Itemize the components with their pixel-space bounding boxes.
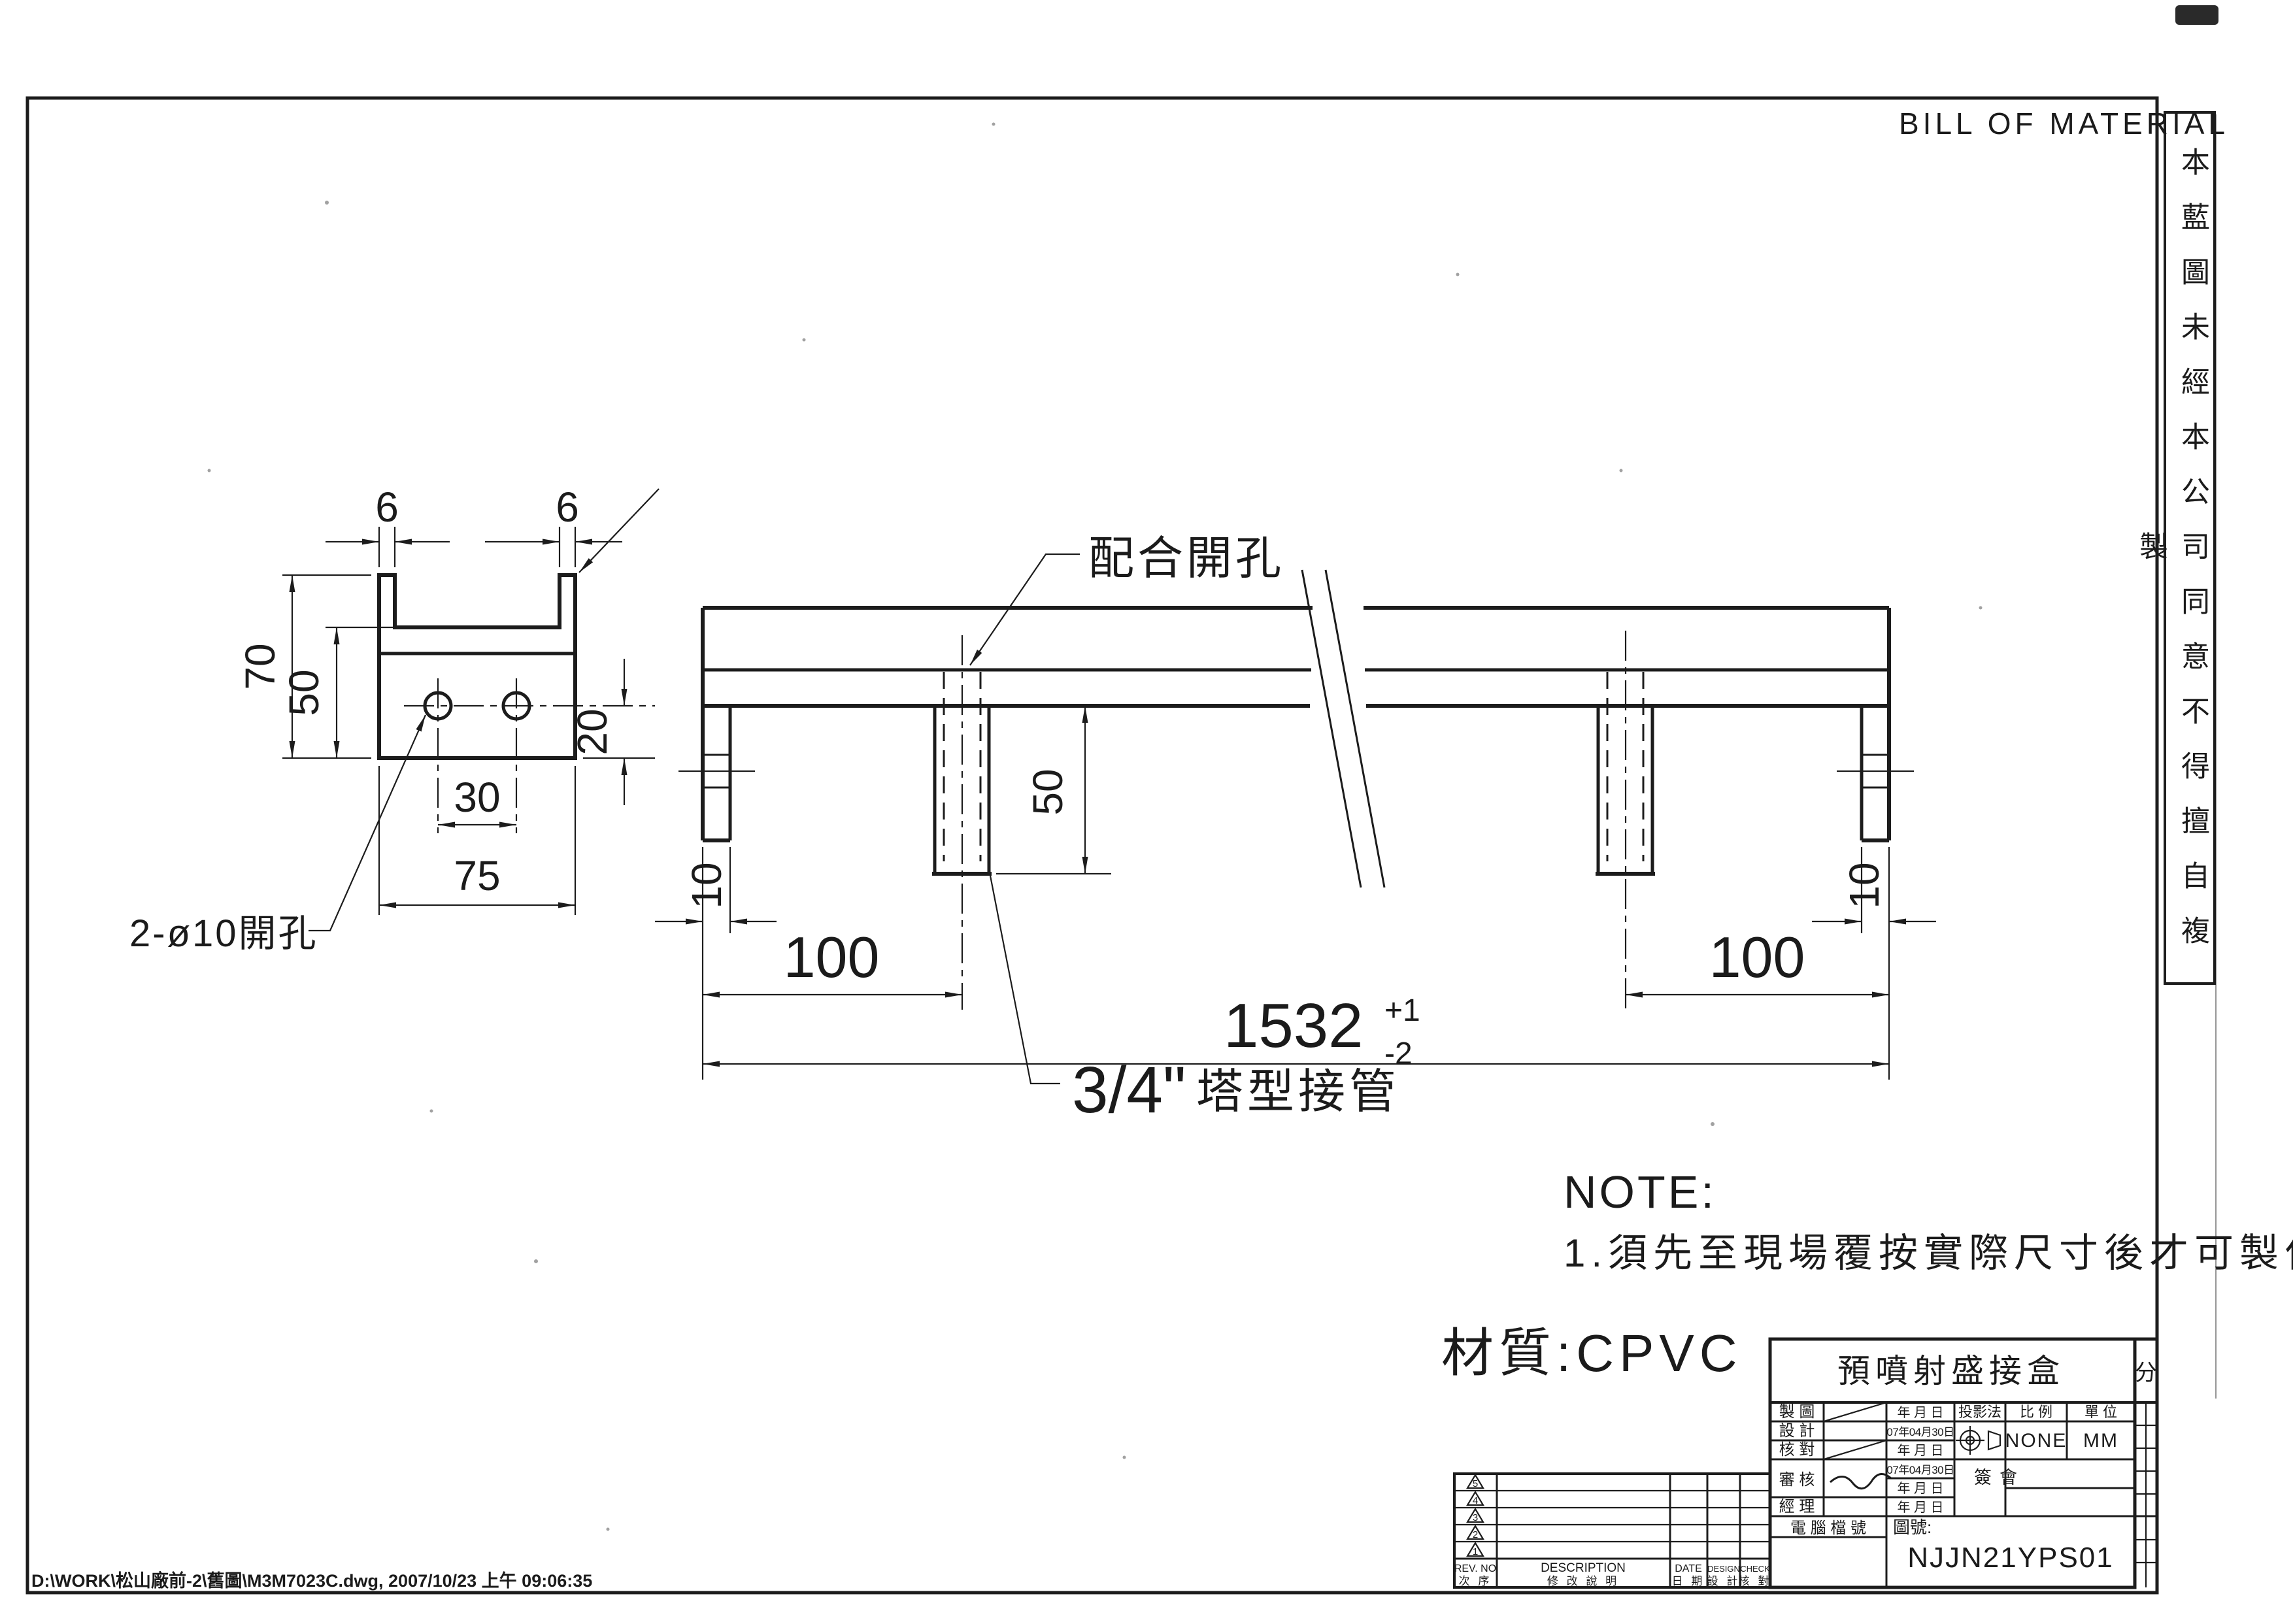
rev-mark-4: 4 [1467, 1492, 1483, 1506]
label-drawing-no: 圖號: [1893, 1517, 1932, 1537]
date-check: 年 月 日 [1897, 1443, 1943, 1458]
scale-value: NONE [2005, 1430, 2067, 1451]
rev-header-desc-en: DESCRIPTION [1541, 1561, 1626, 1575]
label-design: 設 計 [1779, 1422, 1815, 1440]
dim-tab-left: 10 [683, 862, 730, 908]
title-block-title: 預噴射盛接盒 [1837, 1353, 2065, 1389]
dim-right-span: 100 [1709, 925, 1805, 989]
pipe-name-callout: 塔型接管 [1196, 1066, 1400, 1118]
drawing-number: NJJN21YPS01 [1907, 1542, 2113, 1574]
file-path: D:\WORK\松山廠前-2\舊圖\M3M7023C.dwg, 2007/10/… [31, 1570, 592, 1591]
label-file-no: 電 腦 檔 號 [1790, 1519, 1866, 1537]
date-review-2: 年 月 日 [1897, 1481, 1943, 1496]
svg-text:5: 5 [1473, 1478, 1478, 1489]
break-mark [1326, 570, 1384, 887]
note-heading: NOTE: [1564, 1167, 1716, 1218]
rev-mark-2: 2 [1467, 1526, 1483, 1540]
rev-header-no-en: REV. NO [1454, 1563, 1496, 1574]
date-manager: 年 月 日 [1897, 1500, 1943, 1515]
rev-mark-1: 1 [1467, 1543, 1483, 1557]
rev-header-date-zh: 日 期 [1672, 1575, 1705, 1587]
label-review: 審 核 [1779, 1471, 1815, 1489]
dim-hole-spacing: 30 [454, 774, 500, 821]
dim-total-tol-lower: -2 [1384, 1036, 1413, 1071]
note-line-1: 1.須先至現場覆按實際尺寸後才可製作. [1564, 1231, 2293, 1275]
dist-label: 分 [2135, 1361, 2157, 1385]
rev-header-desc-zh: 修 改 說 明 [1547, 1575, 1619, 1587]
drawing-sheet: BILL OF MATERIAL 6 6 70 50 [0, 0, 2293, 1624]
svg-text:2: 2 [1473, 1529, 1478, 1540]
section-view [379, 575, 655, 833]
dim-tube-length: 50 [1024, 769, 1071, 815]
svg-text:1: 1 [1473, 1546, 1478, 1557]
rev-header-check-zh: 核 對 [1739, 1575, 1772, 1587]
rev-header-design-zh: 設 計 [1707, 1575, 1741, 1587]
rev-header-design-en: DESIGN [1707, 1564, 1740, 1574]
signature-squiggle [1830, 1474, 1891, 1488]
dim-tab-right: 10 [1841, 862, 1888, 908]
dim-total: 1532 [1224, 991, 1364, 1061]
dim-inner: 50 [280, 669, 327, 716]
material-label: 材質:CPVC [1441, 1324, 1743, 1382]
unit-value: MM [2083, 1430, 2118, 1451]
header-unit: 單 位 [2084, 1404, 2117, 1420]
rev-header-no-zh: 次 序 [1459, 1575, 1492, 1587]
label-manager: 經 理 [1779, 1498, 1815, 1516]
break-mark [1302, 570, 1361, 887]
fit-hole-callout: 配合開孔 [1088, 533, 1284, 584]
rev-header-check-en: CHECK [1740, 1564, 1770, 1574]
scan-noise [208, 123, 1983, 1531]
section-dimensions: 6 6 70 50 20 30 75 2-ø10開孔 [129, 484, 659, 955]
title-block: 預噴射盛接盒 製 圖 設 計 核 對 審 核 經 理 年 月 日 07年04月3… [1770, 1339, 2157, 1587]
dim-flange-left: 6 [375, 484, 399, 531]
label-draw: 製 圖 [1779, 1403, 1815, 1421]
dim-flange-right: 6 [556, 484, 579, 531]
rev-mark-3: 3 [1467, 1509, 1483, 1523]
dim-total-tol-upper: +1 [1384, 993, 1420, 1028]
projection-symbol-icon [1956, 1426, 2000, 1455]
dim-hole-offset: 20 [569, 708, 616, 755]
dim-left-span: 100 [784, 925, 880, 989]
dim-width: 75 [454, 852, 500, 899]
svg-text:3: 3 [1473, 1512, 1478, 1523]
revision-table: 5 4 3 2 1 REV. NO 次 序 DESCRIPTION 修 改 說 … [1454, 1474, 1772, 1587]
disclaimer-vertical-text: 本藍圖未經本公司同意不得擅自複製 [2171, 131, 2213, 987]
header-projection: 投影法 [1958, 1404, 2001, 1420]
label-check: 核 對 [1779, 1441, 1815, 1459]
flange-leader [579, 489, 659, 572]
header-scale: 比 例 [2020, 1404, 2052, 1420]
date-design: 07年04月30日 [1886, 1426, 1954, 1438]
date-review-1: 07年04月30日 [1886, 1464, 1954, 1476]
rev-mark-5: 5 [1467, 1475, 1483, 1489]
countersign-label: 會簽 [1969, 1468, 2020, 1520]
main-view-annotations: 配合開孔 50 3/4" 塔型接管 10 10 100 100 1532 +1 … [655, 533, 1936, 1127]
date-header: 年 月 日 [1897, 1405, 1943, 1420]
hole-callout: 2-ø10開孔 [129, 912, 318, 955]
dim-height: 70 [237, 643, 284, 689]
pipe-socket-right [1596, 631, 1655, 1010]
pipe-socket-left [932, 635, 992, 1010]
svg-text:4: 4 [1473, 1495, 1478, 1506]
rev-header-date-en: DATE [1675, 1563, 1701, 1574]
